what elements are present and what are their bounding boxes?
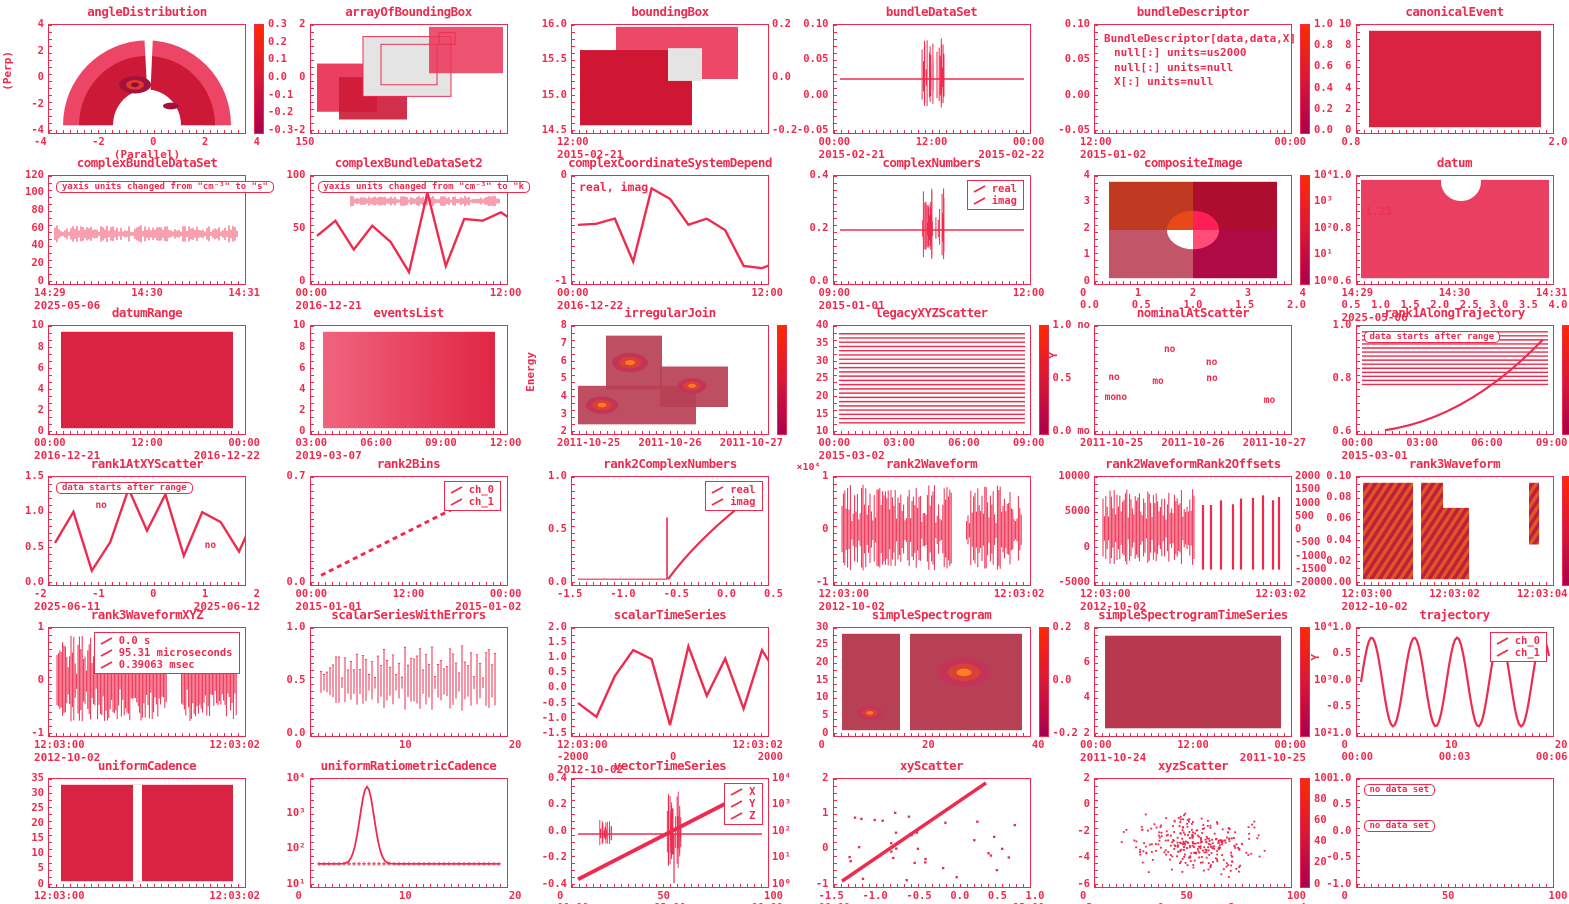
y-tick-label: 0.0 [262,576,306,588]
plot-title: rank2ComplexNumbers [551,456,789,471]
y-tick-label: 0.5 [523,523,567,535]
x-tick-label: 03:00 [296,437,328,449]
x-tick-row: 00:0012:0000:00 [1080,739,1306,751]
legend-entry: 95.31 microseconds [99,647,233,659]
y-tick-label: 2 [1046,222,1090,234]
axes-scalarTimeSeries[interactable] [571,627,769,737]
axes-legacyXYZScatter[interactable] [833,325,1031,435]
y-tick-label: 1.0 [1308,169,1352,181]
y-tick-label: 2 [262,18,306,30]
plot-uniformCadence: uniformCadence3530252015105012:03:0012:0… [0,754,261,904]
annotation-box: data starts after range [56,482,193,494]
plot-title: uniformCadence [28,758,266,773]
legend-label: 0.39063 msec [119,659,195,671]
x-tick-label: 00:00 [1080,739,1112,751]
x-tick-label: 0 [1080,890,1086,902]
legend-label: ch_0 [469,484,494,496]
y-tick-label: -1.5 [523,727,567,739]
x-tick-row: 12:03:0012:03:02 [34,890,260,902]
annotation-box: no data set [1364,820,1436,832]
y-tick-label: 35 [0,772,44,784]
y-tick-label: 2.0 [523,621,567,633]
legend-entry: X [729,786,755,798]
y-tick-label: 1 [785,470,829,482]
y-tick-label: 4 [262,383,306,395]
plot-title: simpleSpectrogram [813,607,1051,622]
x-tick-label: 12:00 [490,437,522,449]
y-tick-label: 25 [785,638,829,650]
y-tick-label: 8 [523,319,567,331]
legend: ch_0ch_1 [1490,632,1547,662]
axes-eventsList[interactable] [310,325,508,435]
legend-label: imag [992,195,1017,207]
x-tick-label: 09:00 [1013,437,1045,449]
y-tick-label: 0.0 [262,727,306,739]
x-tick-label: 2011-10-25 [1080,437,1143,449]
legend-line-icon [1495,648,1511,658]
plot-title: complexNumbers [813,155,1051,170]
y-tick-label: 1.0 [1308,772,1352,784]
x-tick-label: 2011-10-25 [557,437,620,449]
y-tick-label: 2 [785,772,829,784]
axes-nominalAtScatter[interactable] [1094,325,1292,435]
y-tick-label: 0 [0,878,44,890]
y-tick-label: 0 [0,275,44,287]
x-tick-label: 12:00 [490,287,522,299]
y-tick-label: 0.0 [523,681,567,693]
axes-uniformRatiometricCadence[interactable] [310,778,508,888]
x-tick-label: 0.5 [988,890,1007,902]
x-tick-label: 40 [1032,739,1045,751]
x-tick-label: 100 [1287,890,1306,902]
x-tick-label: 50 [1180,890,1193,902]
x-tick-label: 12:03:00 [1342,588,1393,600]
y-tick-label: -1 [785,878,829,890]
plot-title: canonicalEvent [1336,4,1569,19]
axes-simpleSpectrogramTimeSeries[interactable] [1094,627,1292,737]
y-tick-label: 15 [0,832,44,844]
y-tick-label: 0.7 [262,470,306,482]
x-tick-label: 12:00 [557,136,589,148]
x-tick-label: -1.0 [610,588,635,600]
legend-label: Z [749,810,755,822]
x-tick-row: 09:0012:00 [819,287,1045,299]
y-tick-label: 0 [785,523,829,535]
x-tick-row: 2011-10-252011-10-262011-10-27 [1080,437,1306,449]
figure-canvas: angleDistribution(Perp)420-2-40.30.20.10… [0,0,1569,904]
x-tick-label: 06:00 [360,437,392,449]
x-tick-label: -0.5 [906,890,931,902]
y-tick-label: 0.08 [1308,491,1352,503]
y-tick-label: 5000 [1046,505,1090,517]
y-tick-label: 25 [0,802,44,814]
plot-title: legacyXYZScatter [813,305,1051,320]
scatter-word: no [1108,372,1119,383]
x-tick-label: 0.0 [717,588,736,600]
legend-label: real [730,484,755,496]
axes-xyScatter[interactable] [833,778,1031,888]
y-tick-label: 30 [0,787,44,799]
y-tick-label: 2 [0,45,44,57]
axes-irregularJoin[interactable] [571,325,769,435]
axes-bundleDataSet[interactable] [833,24,1031,134]
x-tick-row: 12:03:0012:03:02 [819,588,1045,600]
y-tick-label: 8 [262,341,306,353]
x-tick-label: -1 [92,588,105,600]
x-tick-row: 050100 [557,890,783,902]
legend-entry: ch_1 [449,496,494,508]
legend: 0.0 s95.31 microseconds0.39063 msec [94,632,240,674]
x-tick-label: 00:00 [819,136,851,148]
x-tick-label: 10 [399,739,412,751]
y-tick-label: 4 [1046,169,1090,181]
y-tick-label: 15.5 [523,53,567,65]
y-tick-label: 0.5 [1308,647,1352,659]
y-tick-label: -0.5 [1308,851,1352,863]
y-tick-label: 20 [0,257,44,269]
axes-xyzScatter[interactable] [1094,778,1292,888]
y-tick-label: 4 [1046,691,1090,703]
x-tick-row: 03:0006:0009:0012:00 [296,437,522,449]
y-tick-label: mo [1046,425,1090,437]
y-tick-label: -6 [1046,878,1090,890]
legend-line-icon [729,787,745,797]
y-tick-label: 3 [1046,195,1090,207]
y-tick-label: 15 [785,674,829,686]
legend-entry: ch_1 [1495,647,1540,659]
y-tick-label: 0 [1046,798,1090,810]
plot-title: bundleDataSet [813,4,1051,19]
legend-line-icon [710,485,726,495]
plot-xyScatter: xyScatter210-1-1.5-1.0-0.50.00.51.000:00… [785,754,1046,904]
scatter-word: no [95,500,106,511]
legend-entry: 0.0 s [99,635,233,647]
x-tick-label: 0 [1080,287,1086,299]
y-tick-label: 120 [0,169,44,181]
x-tick-label: 3 [1245,287,1251,299]
x-tick-label: 12:03:02 [1255,588,1306,600]
x-tick-label: 0 [150,136,156,148]
x-tick-label: 0 [296,739,302,751]
scatter-word: no [1206,373,1217,384]
legend-label: ch_1 [1515,647,1540,659]
x-tick-label: 12:03:02 [209,890,260,902]
x-tick-row: 050100 [1080,890,1306,902]
y-tick-label: 40 [785,319,829,331]
x-tick-label: 06:00 [948,437,980,449]
plot-title: scalarTimeSeries [551,607,789,622]
y-tick-label: -0.5 [523,697,567,709]
y-tick-label: 5 [785,709,829,721]
axes-datum[interactable] [1356,175,1554,285]
legend-line-icon [972,196,988,206]
y-tick-label: -1.0 [1308,878,1352,890]
x-tick-label: 12:03:00 [557,739,608,751]
x-tick-label: 0 [819,739,825,751]
y-tick-label: 0 [262,275,306,287]
x-tick-label: 10 [1445,739,1458,751]
plot-title: bundleDescriptor [1074,4,1312,19]
y-tick-label: 0.10 [1046,18,1090,30]
y-axis-label: Y [1047,352,1060,359]
axes-datumRange[interactable] [48,325,246,435]
axes-arrayOfBoundingBox[interactable] [310,24,508,134]
y-tick-label: 0 [785,727,829,739]
y-tick-label: 0 [262,425,306,437]
annotation-box: yaxis units changed from "cm⁻³" to "k [318,181,530,193]
x-tick-label: 12:00 [1177,739,1209,751]
x-tick-label: 2011-10-26 [638,437,701,449]
legend-line-icon [1495,636,1511,646]
x-tick-row: 12:03:0012:03:02 [1080,588,1306,600]
x-tick-label: 2011-10-27 [720,437,783,449]
legend-entry: ch_0 [449,484,494,496]
x-tick-label: 12:03:02 [209,739,260,751]
x-tick-row: 00:0003:0006:0009:00 [1342,437,1568,449]
y-tick-label: 4 [0,383,44,395]
plot-title: arrayOfBoundingBox [290,4,528,19]
y-tick-label: 0 [0,674,44,686]
y-tick-label: 60 [0,222,44,234]
x-tick-label: 2 [202,136,208,148]
y-tick-label: 1.0 [1308,319,1352,331]
x-tick-label: 12:03:02 [1429,588,1480,600]
x-tick-label: 12:03:00 [1080,588,1131,600]
x-tick-row: 14:2914:3014:31 [34,287,260,299]
y-tick-label: 6 [523,355,567,367]
plot-title: simpleSpectrogramTimeSeries [1074,607,1312,622]
x-tick-label: 09:00 [1536,437,1568,449]
x-tick-label: 14:29 [1342,287,1374,299]
y-tick-label: 2 [0,404,44,416]
plot-title: rank2Waveform [813,456,1051,471]
x-tick-label: 12:00 [393,588,425,600]
x-tick-label: 12:03:02 [732,739,783,751]
descriptor-text: BundleDescriptor[data,data,X]null[:] uni… [1104,32,1296,89]
x-tick-row: -1.5-1.0-0.50.00.5 [557,588,783,600]
plot-title: rank3WaveformXYZ [28,607,266,622]
x-tick-label: 4 [1300,287,1306,299]
plot-xyzScatter: xyzScatter20-2-4-6100806040200050100-202… [1046,754,1307,904]
legend-entry: Z [729,810,755,822]
plot-title: scalarSeriesWithErrors [290,607,528,622]
x-tick-row: -1.5-1.0-0.50.00.51.0 [819,890,1045,902]
x-tick-label: 03:00 [883,437,915,449]
x-tick-label: 12:03:00 [34,739,85,751]
x-tick-label: 50 [1442,890,1455,902]
legend-entry: Y [729,798,755,810]
y-tick-label: 2 [1046,727,1090,739]
y-tick-label: 0.10 [1308,470,1352,482]
y-tick-label-right: 0 [1295,523,1301,535]
y-tick-label: 1.0 [262,621,306,633]
x-tick-label: 00:00 [296,588,328,600]
y-tick-label: -2 [262,124,306,136]
x-tick-row: 00:0012:00 [296,287,522,299]
axes-simpleSpectrogram[interactable] [833,627,1031,737]
y-tick-label: 0 [0,71,44,83]
descriptor-line: X[:] units=null [1104,75,1296,89]
y-tick-label: 0 [262,71,306,83]
y-tick-label: 0.8 [1308,372,1352,384]
x-tick-label: 12:03:04 [1517,588,1568,600]
legend-label: imag [730,496,755,508]
y-tick-label: 10⁴ [262,772,306,784]
legend-line-icon [729,799,745,809]
plot-title: xyScatter [813,758,1051,773]
descriptor-line: BundleDescriptor[data,data,X] [1104,32,1296,46]
plot-title: datum [1336,155,1569,170]
y-tick-label: 1.0 [523,470,567,482]
y-tick-label: 0.10 [785,18,829,30]
legend-line-icon [710,497,726,507]
annotation-box: yaxis units changed from "cm⁻³" to "s" [56,181,274,193]
y-tick-label: 10² [262,842,306,854]
plot-title: xyzScatter [1074,758,1312,773]
x-tick-row: 00:0003:0006:0009:00 [819,437,1045,449]
y-tick-label: 0.06 [1308,512,1352,524]
legend: XYZ [724,783,762,825]
y-tick-label: 0.0 [1308,674,1352,686]
descriptor-line: null[:] units=null [1104,61,1296,75]
y-tick-label: -1.0 [523,712,567,724]
x-tick-row: 12:03:0012:03:02 [34,739,260,751]
y-tick-label: 0.2 [785,222,829,234]
y-tick-label: -4 [1046,851,1090,863]
x-tick-label: 20 [922,739,935,751]
y-tick-label: -1.0 [1308,727,1352,739]
legend-label: X [749,786,755,798]
plot-title: trajectory [1336,607,1569,622]
x-tick-row: 01020 [1342,739,1568,751]
plot-title: rank1AlongTrajectory [1336,305,1569,320]
axes-compositeImage[interactable] [1094,175,1292,285]
x-tick-label: 14:31 [228,287,260,299]
x-tick-label: -0.5 [664,588,689,600]
y-tick-label: 0.5 [1308,798,1352,810]
y-tick-label: 0.5 [523,666,567,678]
y-tick-label: 1 [785,807,829,819]
scatter-word: no [1206,357,1217,368]
y-tick-label: 6 [0,362,44,374]
y-tick-label: 50 [262,222,306,234]
plot-title: vectorTimeSeries [551,758,789,773]
x-tick-label: 12:00 [1013,287,1045,299]
x-tick-label: 06:00 [1471,437,1503,449]
axes-rank2Waveform[interactable] [833,476,1031,586]
plot-title: nominalAtScatter [1074,305,1312,320]
y-tick-label: 30 [785,355,829,367]
plot-title: compositeImage [1074,155,1312,170]
axes-scalarSeriesWithErrors[interactable] [310,627,508,737]
y-tick-label: 0.0 [1308,825,1352,837]
y-tick-label: 10 [0,319,44,331]
datum-value: 1.23 [1366,205,1393,218]
corner-label: real, imag [579,180,648,194]
y-tick-label: 10 [262,319,306,331]
y-tick-label: 80 [0,204,44,216]
x-tick-label: -1.5 [557,588,582,600]
axes-uniformCadence[interactable] [48,778,246,888]
x-tick-label: 00:00 [1013,136,1045,148]
legend-line-icon [972,184,988,194]
y-tick-label: 15.0 [523,89,567,101]
x-tick-label: 150 [296,136,315,148]
y-tick-label: 10 [0,847,44,859]
legend-entry: ch_0 [1495,635,1540,647]
y-tick-label: 100 [262,169,306,181]
y-tick-label: 7 [523,337,567,349]
y-tick-label: 8 [1046,621,1090,633]
plot-title: rank2Bins [290,456,528,471]
plot-title: datumRange [28,305,266,320]
y-tick-label: -0.05 [1046,124,1090,136]
x-tick-row: -2-1012 [34,588,260,600]
y-tick-label: 0.4 [523,772,567,784]
annotation-box: data starts after range [1364,331,1501,343]
x-tick-label: 0.8 [1342,136,1361,148]
y-tick-label: 0.0 [0,576,44,588]
y-tick-label: 100 [0,186,44,198]
y-tick-label: 2 [262,404,306,416]
axes-boundingBox[interactable] [571,24,769,134]
x-tick-label: 14:31 [1536,287,1568,299]
x-tick-label: 1 [202,588,208,600]
plot-no-data: 1.00.50.0-0.5-1.0050100no data setno dat… [1308,754,1569,904]
x-tick-label: 14:30 [1439,287,1471,299]
legend-label: 0.0 s [119,635,151,647]
x-tick-label: 0.5 [764,588,783,600]
y-tick-label: 16.0 [523,18,567,30]
x-tick-row: 02040 [819,739,1045,751]
x-tick-label: 50 [657,890,670,902]
x-tick-row: 01234 [1080,287,1306,299]
y-tick-label: 1 [1046,248,1090,260]
y-tick-label: 20 [0,817,44,829]
y-tick-label: 8 [1308,39,1352,51]
y-tick-label: 15 [785,408,829,420]
x-tick-label: 12:00 [1080,136,1112,148]
legend-line-icon [449,497,465,507]
axes-rank3Waveform[interactable] [1356,476,1554,586]
plot-uniformRatiometricCadence: uniformRatiometricCadence10⁴10³10²10¹010… [262,754,523,904]
y-tick-label: 0.0 [785,275,829,287]
x-tick-label: -1.0 [862,890,887,902]
x-tick-label: 12:00 [916,136,948,148]
y-tick-label: 3 [523,408,567,420]
x-tick-label: -2 [92,136,105,148]
x-tick-label: 00:00 [296,287,328,299]
x-tick-label: 1 [1135,287,1141,299]
y-tick-label: 5 [523,372,567,384]
axes-angleDistribution[interactable] [48,24,246,134]
x-tick-row: 00:0012:00 [557,287,783,299]
y-tick-label: 0.00 [1046,89,1090,101]
axes-rank2WaveformRank2Offsets[interactable] [1094,476,1292,586]
y-tick-label: 4 [0,18,44,30]
x-tick-row: 12:03:0012:03:02 [557,739,783,751]
y-tick-label: 0.5 [0,541,44,553]
x-tick-row: 12:03:0012:03:0212:03:04 [1342,588,1568,600]
x-tick-label: 09:00 [819,287,851,299]
x-tick-label: 00:00 [490,588,522,600]
x-tick-label: 12:03:00 [34,890,85,902]
axes-canonicalEvent[interactable] [1356,24,1554,134]
y-tick-label: 0.4 [785,169,829,181]
y-tick-label: 0.04 [1308,534,1352,546]
x-tick-label: 20 [1555,739,1568,751]
scatter-word: mo [1152,376,1163,387]
